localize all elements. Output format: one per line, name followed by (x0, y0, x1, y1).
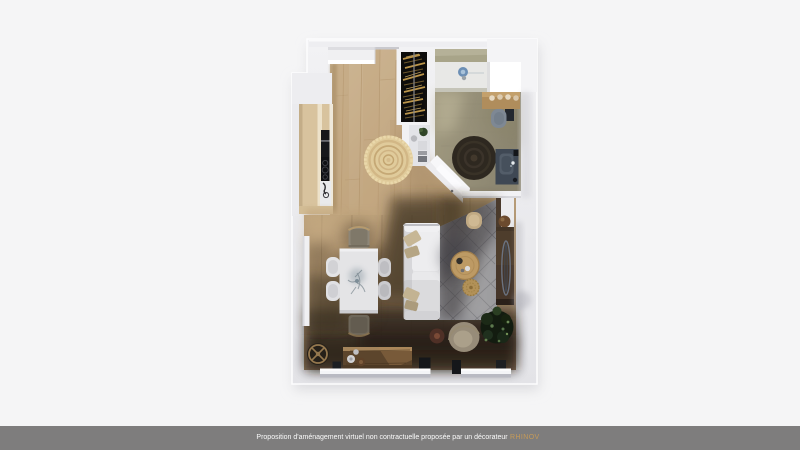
svg-text:RHINOV: RHINOV (510, 434, 540, 441)
svg-text:Proposition d'aménagement virt: Proposition d'aménagement virtuel non co… (256, 434, 508, 441)
